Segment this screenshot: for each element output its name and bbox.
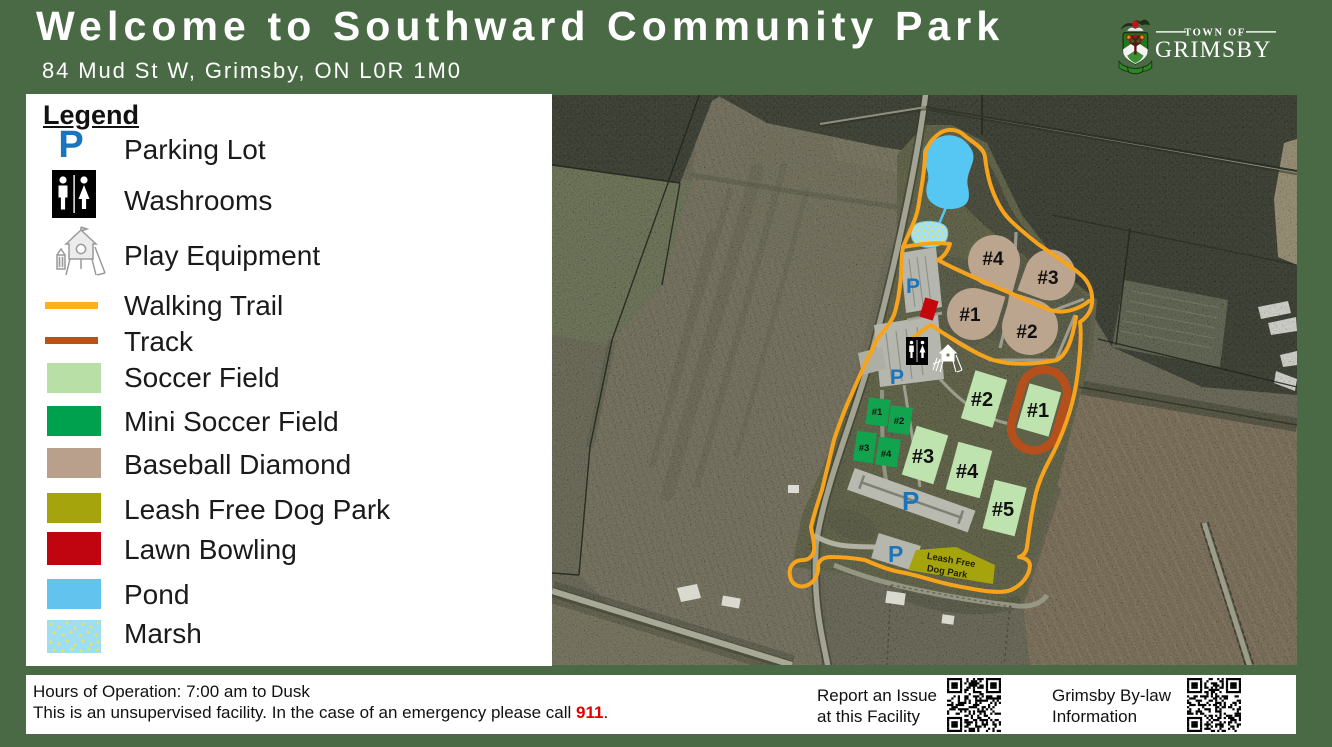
svg-text:#4: #4 xyxy=(982,249,1004,270)
svg-text:#2: #2 xyxy=(894,416,905,427)
svg-text:GRIMSBY: GRIMSBY xyxy=(1155,37,1272,63)
svg-text:P: P xyxy=(902,486,919,516)
svg-text:#4: #4 xyxy=(956,461,979,483)
svg-text:#3: #3 xyxy=(859,443,870,454)
svg-text:#1: #1 xyxy=(1027,400,1049,422)
svg-text:#4: #4 xyxy=(881,449,892,460)
svg-text:#3: #3 xyxy=(1037,268,1058,289)
svg-text:P: P xyxy=(906,275,920,298)
svg-text:P: P xyxy=(890,366,904,389)
svg-text:#3: #3 xyxy=(912,446,934,468)
svg-text:P: P xyxy=(888,541,903,567)
svg-text:#5: #5 xyxy=(992,499,1014,521)
svg-text:#2: #2 xyxy=(1016,322,1037,343)
svg-text:#1: #1 xyxy=(959,305,981,326)
svg-text:#2: #2 xyxy=(971,389,993,411)
svg-text:#1: #1 xyxy=(872,407,883,418)
